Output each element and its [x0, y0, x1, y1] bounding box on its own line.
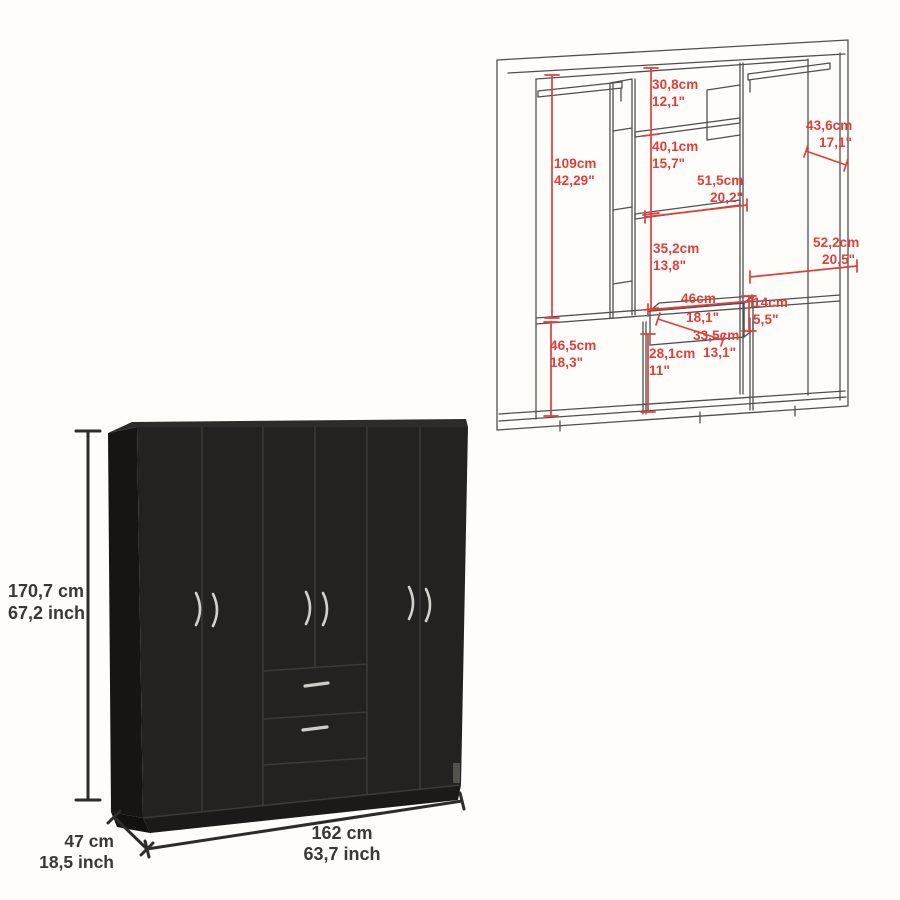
dim-cm: 46,5cm: [550, 337, 596, 354]
dim-cm: 40,1cm: [652, 138, 698, 155]
dim-label-right-depth: 43,6cm 17,1": [806, 117, 852, 151]
dim-inch: 15,7": [652, 155, 698, 172]
dim-inch: 18,5 inch: [26, 852, 114, 873]
dim-cm: 52,2cm: [813, 234, 859, 251]
dim-cm: 28,1cm: [649, 345, 695, 362]
dim-inch: 67,2 inch: [8, 602, 120, 624]
dim-label-second-section-height: 40,1cm 15,7": [652, 138, 698, 172]
dim-label-drawer-depth: 33,5cm 13,1": [693, 327, 739, 361]
wardrobe-render: [108, 419, 468, 833]
dim-cm: 51,5cm: [697, 172, 743, 189]
dim-label-top-center-height: 30,8cm 12,1": [652, 76, 698, 110]
dim-inch: 12,1": [652, 93, 698, 110]
dim-label-left-column-height: 109cm 42,29": [554, 155, 597, 189]
dim-inch: 13,8": [653, 257, 699, 274]
dim-cm: 162 cm: [256, 823, 428, 844]
wardrobe-foot-detail: [453, 763, 460, 783]
dim-label-drawer-width: 46cm 18,1": [681, 290, 719, 326]
dim-cm: 43,6cm: [806, 117, 852, 134]
dim-cm: 109cm: [554, 155, 597, 172]
dim-label-wardrobe-height: 170,7 cm 67,2 inch: [8, 580, 120, 624]
dim-label-bottom-center-height: 28,1cm 11": [649, 345, 695, 379]
dim-label-bottom-left-height: 46,5cm 18,3": [550, 337, 596, 371]
diagram-artwork: [0, 0, 900, 900]
dim-inch: 20,2": [697, 189, 743, 206]
dim-inch: 17,1": [806, 134, 852, 151]
dim-inch: 63,7 inch: [256, 844, 428, 865]
dim-inch: 18,3": [550, 354, 596, 371]
dim-label-wardrobe-width: 162 cm 63,7 inch: [256, 823, 428, 865]
dim-label-third-section-height: 35,2cm 13,8": [653, 240, 699, 274]
dim-inch: 18,1": [681, 307, 719, 326]
dim-label-right-column-width: 52,2cm 20,5": [813, 234, 859, 268]
dim-inch: 5,5": [753, 311, 788, 328]
dim-cm: 33,5cm: [693, 327, 739, 344]
dim-cm: 46cm: [681, 290, 719, 307]
dim-label-center-shelf-width: 51,5cm 20,2": [697, 172, 743, 206]
dim-cm: 35,2cm: [653, 240, 699, 257]
dim-cm: 30,8cm: [652, 76, 698, 93]
dim-inch: 42,29": [554, 172, 597, 189]
dim-inch: 11": [649, 362, 695, 379]
dim-cm: 14cm: [753, 294, 788, 311]
dim-cm: 170,7 cm: [8, 580, 120, 602]
dim-cm: 47 cm: [26, 831, 114, 852]
dim-label-wardrobe-depth: 47 cm 18,5 inch: [26, 831, 114, 873]
product-dimension-image: 30,8cm 12,1" 40,1cm 15,7" 43,6cm 17,1" 1…: [0, 0, 900, 900]
dim-inch: 20,5": [813, 251, 859, 268]
dim-label-drawer-height: 14cm 5,5": [753, 294, 788, 328]
dim-inch: 13,1": [693, 344, 739, 361]
